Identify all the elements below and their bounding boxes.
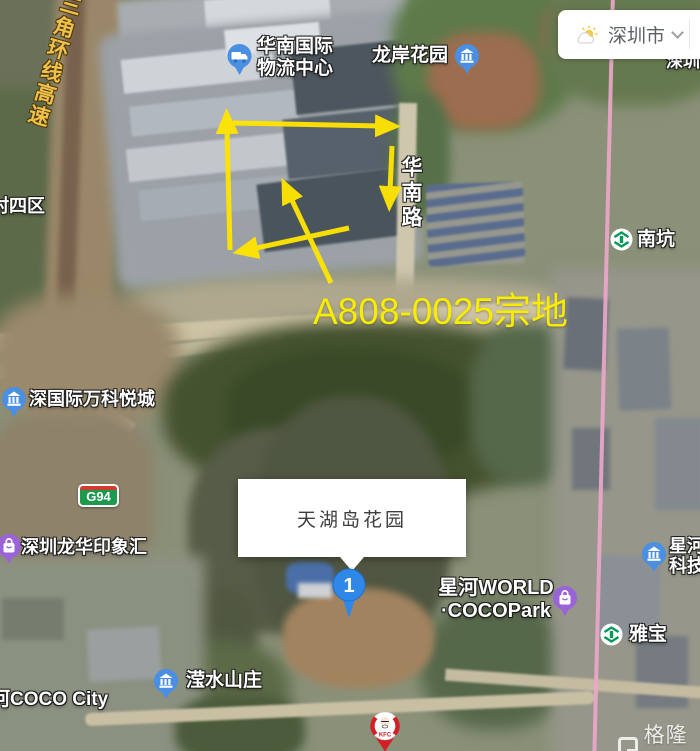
poi-logistics-label[interactable]: 华南国际 物流中心 <box>257 36 333 80</box>
poi-yingshui-label[interactable]: 滢水山庄 <box>186 670 262 692</box>
poi-yabao-label[interactable]: 雅宝 <box>629 624 667 646</box>
logistics-pin-truck-icon[interactable] <box>226 43 253 76</box>
building <box>87 626 162 682</box>
parcel-annotation: A808-0025宗地 <box>313 281 568 335</box>
infobox-title: 天湖岛花园 <box>297 505 407 532</box>
nankeng-metro-icon[interactable] <box>610 228 633 251</box>
wanke-pin-building-icon[interactable] <box>1 386 27 418</box>
poi-cunsiqu-label[interactable]: 村四区 <box>0 195 45 217</box>
blue-roof-cluster <box>426 181 526 266</box>
longan-pin-building-icon[interactable] <box>454 43 480 75</box>
poi-wanke-label[interactable]: 深国际万科悦城 <box>29 388 155 410</box>
city-weather-widget[interactable]: 深圳市 <box>558 10 700 59</box>
poi-xinghe-partial-line2: 科技 <box>669 556 700 576</box>
g94-highway-shield: G94 <box>78 484 119 507</box>
gelonghui-watermark: 格隆汇 <box>618 719 700 751</box>
gelonghui-logo-icon <box>618 737 638 751</box>
shield-red-stripe <box>80 486 117 490</box>
poi-yinxianghui-label[interactable]: 深圳龙华印象汇 <box>21 536 147 558</box>
gelonghui-watermark-text: 格隆汇 <box>644 719 700 751</box>
widget-divider <box>689 20 690 49</box>
building <box>572 428 610 490</box>
poi-xinghe-partial-line1: 星河 <box>669 536 700 556</box>
xinghe-partial-pin-building-icon[interactable] <box>641 541 667 573</box>
building <box>617 327 672 411</box>
result-marker-1[interactable]: 1 <box>330 568 368 622</box>
building <box>2 598 64 640</box>
sun-cloud-icon <box>576 25 600 45</box>
chevron-down-icon[interactable] <box>671 26 684 39</box>
poi-logistics-line2: 物流中心 <box>257 58 333 80</box>
building <box>655 418 700 510</box>
poi-xinghe-label[interactable]: 星河WORLD ·COCOPark <box>430 577 562 623</box>
kfc-pin[interactable]: KFC <box>367 711 403 751</box>
yingshui-pin-building-icon[interactable] <box>153 668 179 700</box>
poi-cococity-label[interactable]: 河COCO City <box>0 689 108 711</box>
infobox-tianhudao[interactable]: 天湖岛花园 <box>238 479 466 557</box>
poi-logistics-line1: 华南国际 <box>257 36 333 58</box>
marker-number: 1 <box>343 575 354 597</box>
terrain-blob <box>298 583 332 598</box>
city-selector-label[interactable]: 深圳市 <box>608 21 665 48</box>
kfc-label: KFC <box>379 733 392 739</box>
poi-xinghe-line1: 星河WORLD <box>430 577 562 600</box>
xinghe-pin-bag-icon[interactable] <box>552 585 578 617</box>
building <box>636 636 688 708</box>
poi-longan-label[interactable]: 龙岸花园 <box>372 45 448 67</box>
huanan-road-label: 华南路 <box>395 156 425 231</box>
poi-xinghe-line2: ·COCOPark <box>430 600 562 623</box>
yinxianghui-pin-bag-icon[interactable] <box>0 533 22 565</box>
satellite-map[interactable]: 三角环线高速 华南路 A808-0025宗地 华南国际 物流中心 龙岸花园 村四… <box>0 0 700 751</box>
g94-label: G94 <box>86 488 111 505</box>
yabao-metro-icon[interactable] <box>600 623 623 646</box>
poi-xinghe-partial-label[interactable]: 星河 科技 <box>669 536 700 576</box>
poi-nankeng-label[interactable]: 南坑 <box>637 229 675 251</box>
